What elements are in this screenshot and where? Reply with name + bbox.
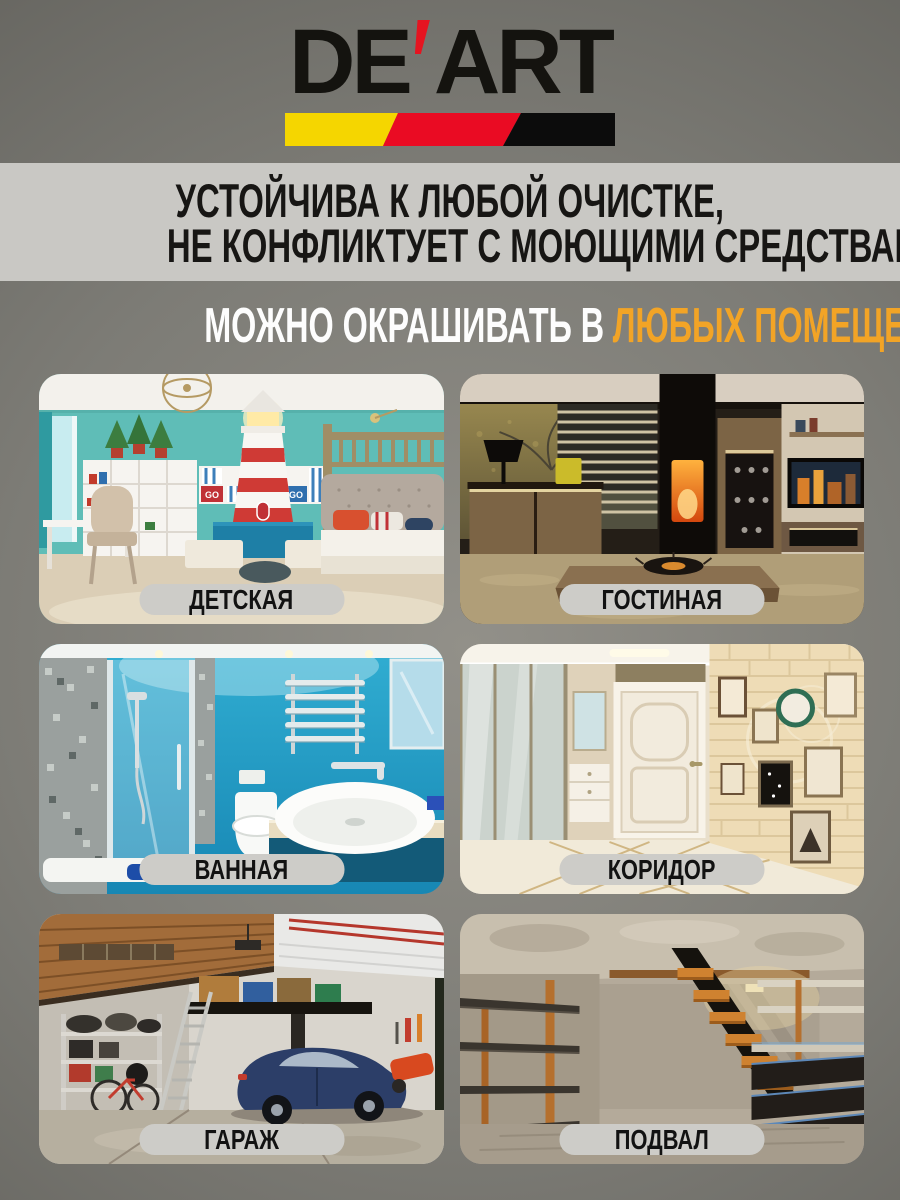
room-label-pill: ДЕТСКАЯ xyxy=(139,584,344,615)
stripe-yellow-segment xyxy=(285,113,398,146)
dresser xyxy=(570,764,610,822)
headline-prefix: МОЖНО ОКРАШИВАТЬ В xyxy=(204,299,604,353)
logo-part-de: DE xyxy=(289,11,409,113)
room-label-pill: КОРИДОР xyxy=(560,854,765,885)
window xyxy=(39,412,77,548)
room-label: ПОДВАЛ xyxy=(615,1124,709,1156)
rooms-headline: МОЖНО ОКРАШИВАТЬ ВЛЮБЫХ ПОМЕЩЕНИЯХ xyxy=(0,304,900,348)
display-cabinet xyxy=(718,418,782,574)
room-label-pill: ГАРАЖ xyxy=(139,1124,344,1155)
room-label-pill: ПОДВАЛ xyxy=(560,1124,765,1155)
claim-banner: УСТОЙЧИВА К ЛЮБОЙ ОЧИСТКЕ, НЕ КОНФЛИКТУЕ… xyxy=(0,163,900,281)
room-label-pill: ВАННАЯ xyxy=(139,854,344,885)
logo-apostrophe xyxy=(415,20,430,54)
room-label-pill: ГОСТИНАЯ xyxy=(560,584,765,615)
brand-stripe xyxy=(285,113,615,146)
room-label: ГАРАЖ xyxy=(204,1124,279,1156)
room-card-garage: ГАРАЖ xyxy=(39,914,444,1164)
room-card-basement: ПОДВАЛ xyxy=(460,914,864,1164)
room-card-corridor: КОРИДОР xyxy=(460,644,864,894)
room-label: ГОСТИНАЯ xyxy=(602,584,723,616)
product-infographic: DEART УСТОЙЧИВА К ЛЮБОЙ ОЧИСТКЕ, НЕ КОНФ… xyxy=(0,0,900,1200)
claim-line-2: НЕ КОНФЛИКТУЕТ С МОЮЩИМИ СРЕДСТВАМИ xyxy=(0,223,900,268)
rooms-grid: GO GO xyxy=(39,374,861,1164)
claim-line-1: УСТОЙЧИВА К ЛЮБОЙ ОЧИСТКЕ, xyxy=(0,178,900,223)
room-label: КОРИДОР xyxy=(608,854,716,886)
room-card-kids-room: GO GO xyxy=(39,374,444,624)
towel-radiator xyxy=(285,674,365,754)
room-label: ВАННАЯ xyxy=(195,854,288,886)
door xyxy=(614,682,706,838)
stripe-red-segment xyxy=(383,113,521,146)
logo-part-art: ART xyxy=(434,11,611,113)
sideboard xyxy=(468,482,604,566)
room-label: ДЕТСКАЯ xyxy=(189,584,293,616)
shower xyxy=(107,660,195,876)
svg-text:GO: GO xyxy=(205,490,219,500)
headline-highlight: ЛЮБЫХ ПОМЕЩЕНИЯХ xyxy=(613,299,900,353)
room-card-living-room: ГОСТИНАЯ xyxy=(460,374,864,624)
brand-logo: DEART xyxy=(0,18,900,106)
tv-wall xyxy=(782,404,865,554)
stripe-black-segment xyxy=(503,113,615,146)
svg-text:GO: GO xyxy=(289,490,303,500)
room-card-bathroom: ВАННАЯ xyxy=(39,644,444,894)
brand-header: DEART xyxy=(0,0,900,163)
